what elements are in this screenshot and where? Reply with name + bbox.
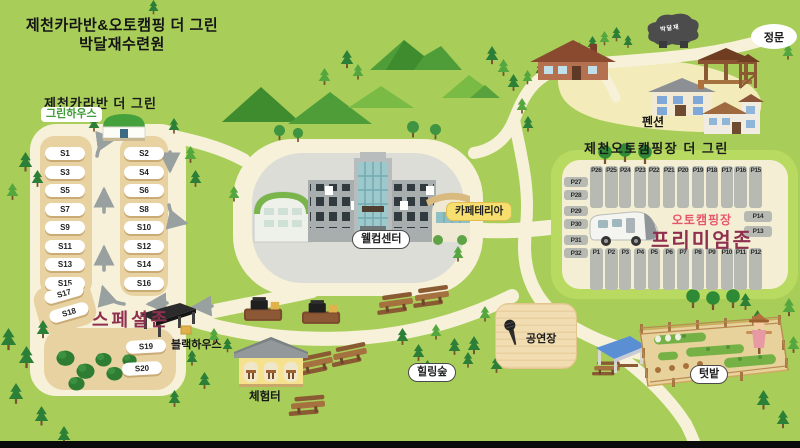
camp-site-pair: P18P17 xyxy=(706,166,734,208)
mountain-icon xyxy=(222,40,500,124)
greenhouse-building xyxy=(100,109,148,142)
camp-site-S3: S3 xyxy=(45,166,85,179)
camp-site-S7: S7 xyxy=(45,203,85,216)
camp-site-S13: S13 xyxy=(45,258,85,271)
blackhouse-label: 블랙하우스 xyxy=(171,336,222,352)
camp-site-P11: P11 xyxy=(734,248,747,290)
camp-site-pair: P27P28 xyxy=(564,177,588,200)
camp-site-P20: P20 xyxy=(677,166,690,208)
camp-site-pair: P29P30 xyxy=(564,206,588,229)
camp-site-P9: P9 xyxy=(706,248,719,290)
camp-site-S4: S4 xyxy=(124,166,164,179)
caravan-slot-S19: S19 xyxy=(126,339,167,354)
camp-site-pair: P5P6 xyxy=(648,248,676,290)
camp-site-S1: S1 xyxy=(45,147,85,160)
camp-site-P21: P21 xyxy=(663,166,676,208)
greenhouse-label: 그린하우스 xyxy=(41,107,102,122)
camp-site-S5: S5 xyxy=(45,184,85,197)
map-title-line2: 박달재수련원 xyxy=(20,35,224,54)
camp-site-P6: P6 xyxy=(663,248,676,290)
watchtower-structure xyxy=(734,52,762,90)
premium-slot-column-left: P27P28P29P30P31P32 xyxy=(564,177,588,258)
main-gate-label: 정문 xyxy=(751,24,797,49)
camp-site-S2: S2 xyxy=(124,147,164,160)
experience-pavilion xyxy=(232,332,310,392)
camp-site-P32: P32 xyxy=(564,248,588,258)
campground-map: 박달재 xyxy=(0,0,800,448)
camp-site-P27: P27 xyxy=(564,177,588,187)
camp-site-S8: S8 xyxy=(124,203,164,216)
camp-site-pair: P7P8 xyxy=(677,248,705,290)
camp-site-P17: P17 xyxy=(721,166,734,208)
cafeteria-label: 카페테리아 xyxy=(446,202,512,221)
camp-site-S12: S12 xyxy=(124,240,164,253)
camp-site-pair: P31P32 xyxy=(564,235,588,258)
screen-edge-bar xyxy=(0,441,800,448)
microphone-icon xyxy=(500,316,525,352)
camp-site-P25: P25 xyxy=(605,166,618,208)
camp-site-P4: P4 xyxy=(634,248,647,290)
camp-site-P22: P22 xyxy=(648,166,661,208)
camp-site-P1: P1 xyxy=(590,248,603,290)
welcome-center-label: 웰컴센터 xyxy=(352,230,410,249)
camp-site-pair: P20P19 xyxy=(677,166,705,208)
camp-site-P8: P8 xyxy=(692,248,705,290)
premium-zone-title: 프리미엄존 xyxy=(648,224,756,253)
caravan-slot-S20: S20 xyxy=(122,361,163,376)
experience-area-label: 체험터 xyxy=(249,388,281,404)
premium-slot-row-bottom: P1P2P3P4P5P6P7P8P9P10P11P12 xyxy=(590,248,762,290)
camp-site-pair: P1P2 xyxy=(590,248,618,290)
map-title-line1: 제천카라반&오토캠핑 더 그린 xyxy=(20,16,224,35)
caravan-slot-column-right: S2S4S6S8S10S12S14S16 xyxy=(124,147,164,290)
farmhouse-building xyxy=(530,36,616,86)
camp-site-pair: P26P25 xyxy=(590,166,618,208)
guesthouse-building xyxy=(702,94,764,140)
camp-site-P16: P16 xyxy=(734,166,747,208)
camp-site-P19: P19 xyxy=(692,166,705,208)
camp-site-pair: P9P10 xyxy=(706,248,734,290)
camp-site-pair: P24P23 xyxy=(619,166,647,208)
pension-label: 펜션 xyxy=(642,113,664,130)
stage-area: 공연장 xyxy=(495,303,577,369)
camp-site-P28: P28 xyxy=(564,190,588,200)
camp-site-P31: P31 xyxy=(564,235,588,245)
camp-site-pair: P11P12 xyxy=(734,248,762,290)
camp-site-S11: S11 xyxy=(45,240,85,253)
camp-site-P15: P15 xyxy=(749,166,762,208)
camp-site-pair: P16P15 xyxy=(734,166,762,208)
camp-site-P23: P23 xyxy=(634,166,647,208)
camp-site-P30: P30 xyxy=(564,219,588,229)
premium-slot-row-top: P26P25P24P23P22P21P20P19P18P17P16P15 xyxy=(590,166,762,208)
camp-site-S6: S6 xyxy=(124,184,164,197)
camp-site-P3: P3 xyxy=(619,248,632,290)
healing-forest-label: 힐링숲 xyxy=(408,363,456,382)
camp-site-P24: P24 xyxy=(619,166,632,208)
map-title: 제천카라반&오토캠핑 더 그린 박달재수련원 xyxy=(20,16,224,54)
stage-label: 공연장 xyxy=(526,330,556,346)
camp-site-P29: P29 xyxy=(564,206,588,216)
camp-site-P2: P2 xyxy=(605,248,618,290)
camp-site-pair: P22P21 xyxy=(648,166,676,208)
camp-site-pair: P3P4 xyxy=(619,248,647,290)
camp-site-P12: P12 xyxy=(749,248,762,290)
camp-site-P10: P10 xyxy=(721,248,734,290)
caravan-slot-column-left: S1S3S5S7S9S11S13S15 xyxy=(45,147,85,290)
camp-site-P7: P7 xyxy=(677,248,690,290)
camp-site-S10: S10 xyxy=(124,221,164,234)
auto-camp-section-title: 제천오토캠핑장 더 그린 xyxy=(584,138,729,157)
camp-site-P18: P18 xyxy=(706,166,719,208)
camp-site-P26: P26 xyxy=(590,166,603,208)
camp-site-S9: S9 xyxy=(45,221,85,234)
special-zone-label: 스페셜존 xyxy=(92,306,170,332)
camp-site-S16: S16 xyxy=(124,277,164,290)
camp-site-S14: S14 xyxy=(124,258,164,271)
camp-site-P5: P5 xyxy=(648,248,661,290)
garden-label: 텃밭 xyxy=(690,365,728,384)
